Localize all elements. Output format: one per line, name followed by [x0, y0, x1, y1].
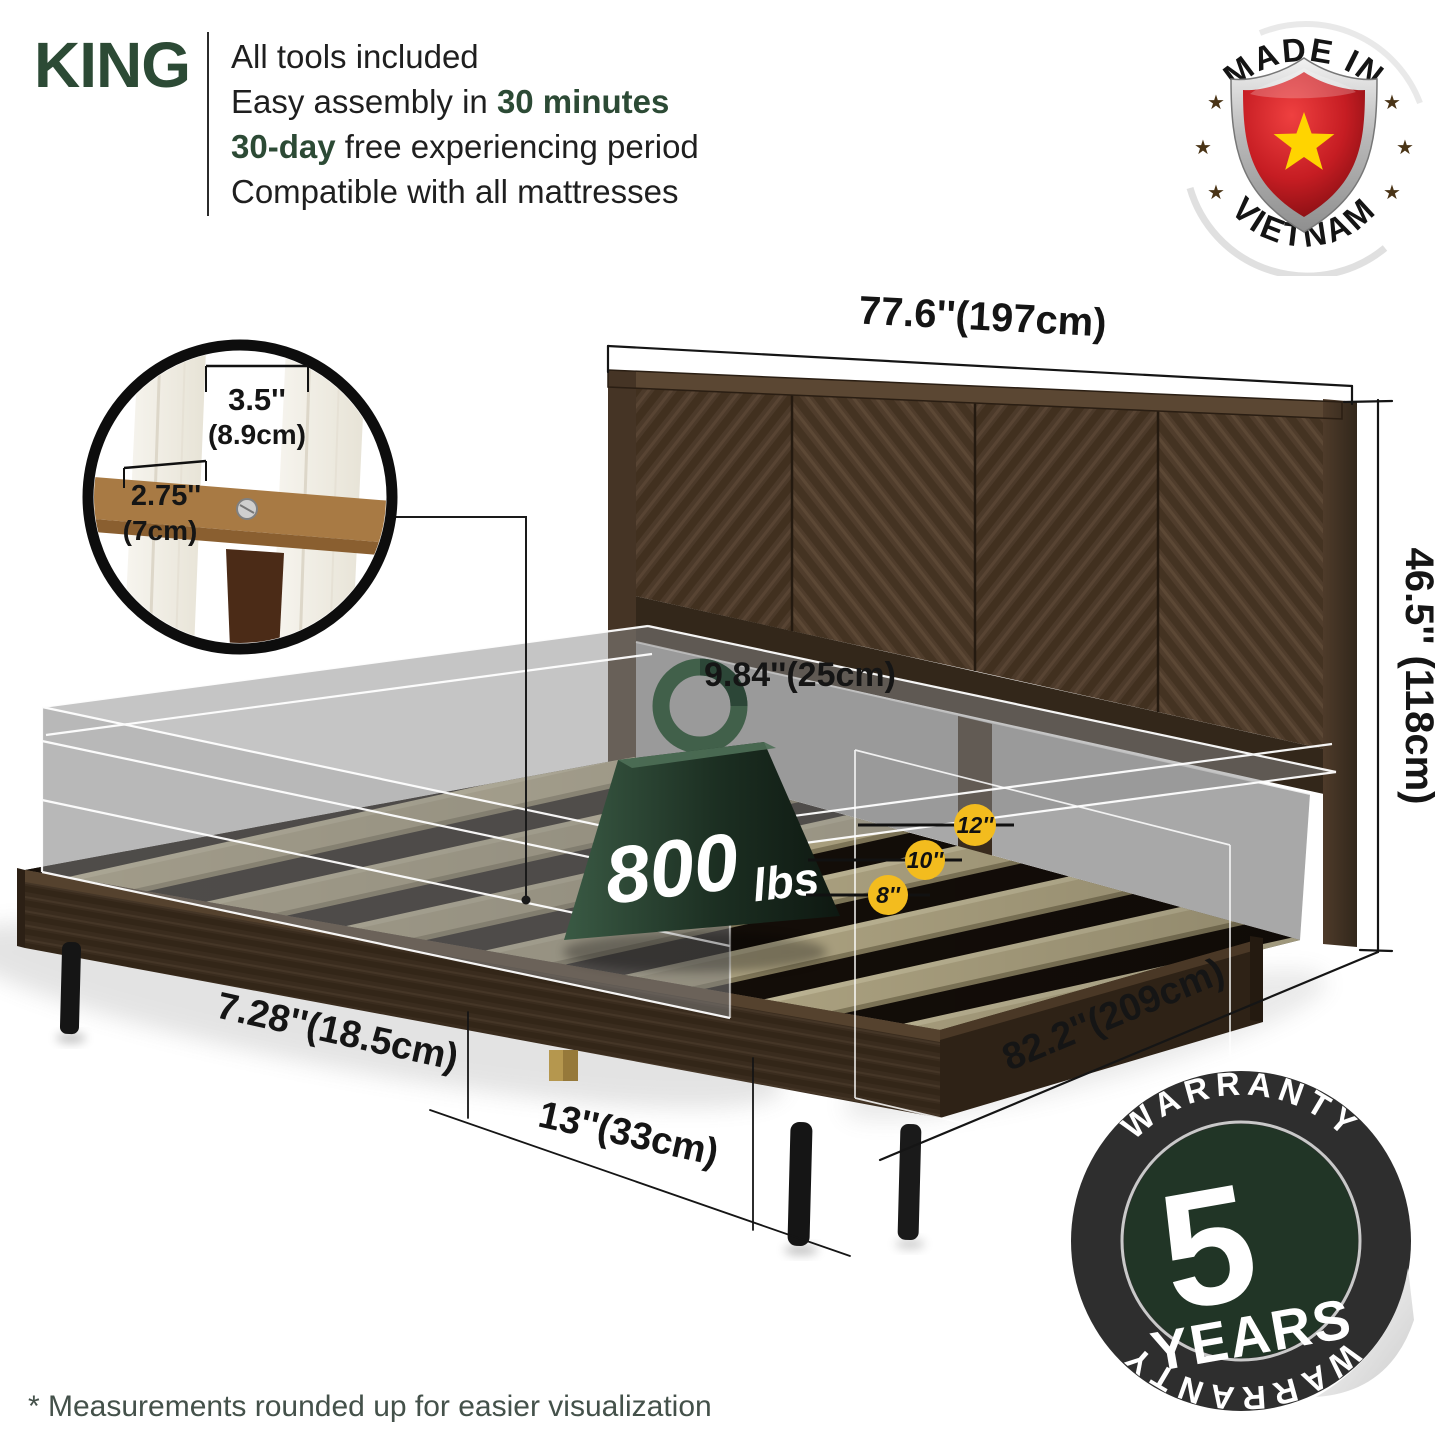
slat-width-cm-label: (7cm): [123, 515, 198, 546]
weight-value: 800: [600, 816, 743, 921]
headboard-panel: [792, 378, 975, 671]
warranty-badge: WARRANTY WARRANTY 5 YEARS: [1058, 1058, 1424, 1424]
headboard-height-label: 46.5'' (118cm): [1397, 548, 1441, 805]
height-label-12: 12'': [957, 812, 995, 838]
slat-width-label: 2.75'': [131, 480, 201, 512]
right-front-leg: [897, 1124, 921, 1241]
detail-leg: [226, 549, 284, 652]
slat-detail-inset: 3.5'' (8.9cm) 2.75'' (7cm): [88, 345, 392, 652]
headboard-panel: [1158, 394, 1342, 753]
footnote: * Measurements rounded up for easier vis…: [28, 1390, 712, 1424]
center-front-leg: [787, 1122, 812, 1247]
headboard-panel: [975, 386, 1158, 712]
headboard-width-label: 77.6''(197cm): [858, 289, 1108, 346]
slat-gap-label: 3.5'': [228, 382, 286, 417]
dim-headboard-height: 46.5'' (118cm): [1344, 400, 1441, 952]
slat-gap-cm-label: (8.9cm): [208, 419, 306, 450]
headboard-right-post: [1323, 399, 1357, 947]
height-label-8: 8'': [876, 882, 901, 908]
product-infographic: KING All tools included Easy assembly in…: [0, 0, 1445, 1445]
clearance-label: 9.84''(25cm): [704, 656, 896, 694]
rail-end-cap: [1250, 936, 1263, 1022]
height-label-10: 10'': [907, 847, 945, 873]
front-left-leg: [60, 942, 81, 1034]
brass-center-foot: [549, 1050, 578, 1081]
